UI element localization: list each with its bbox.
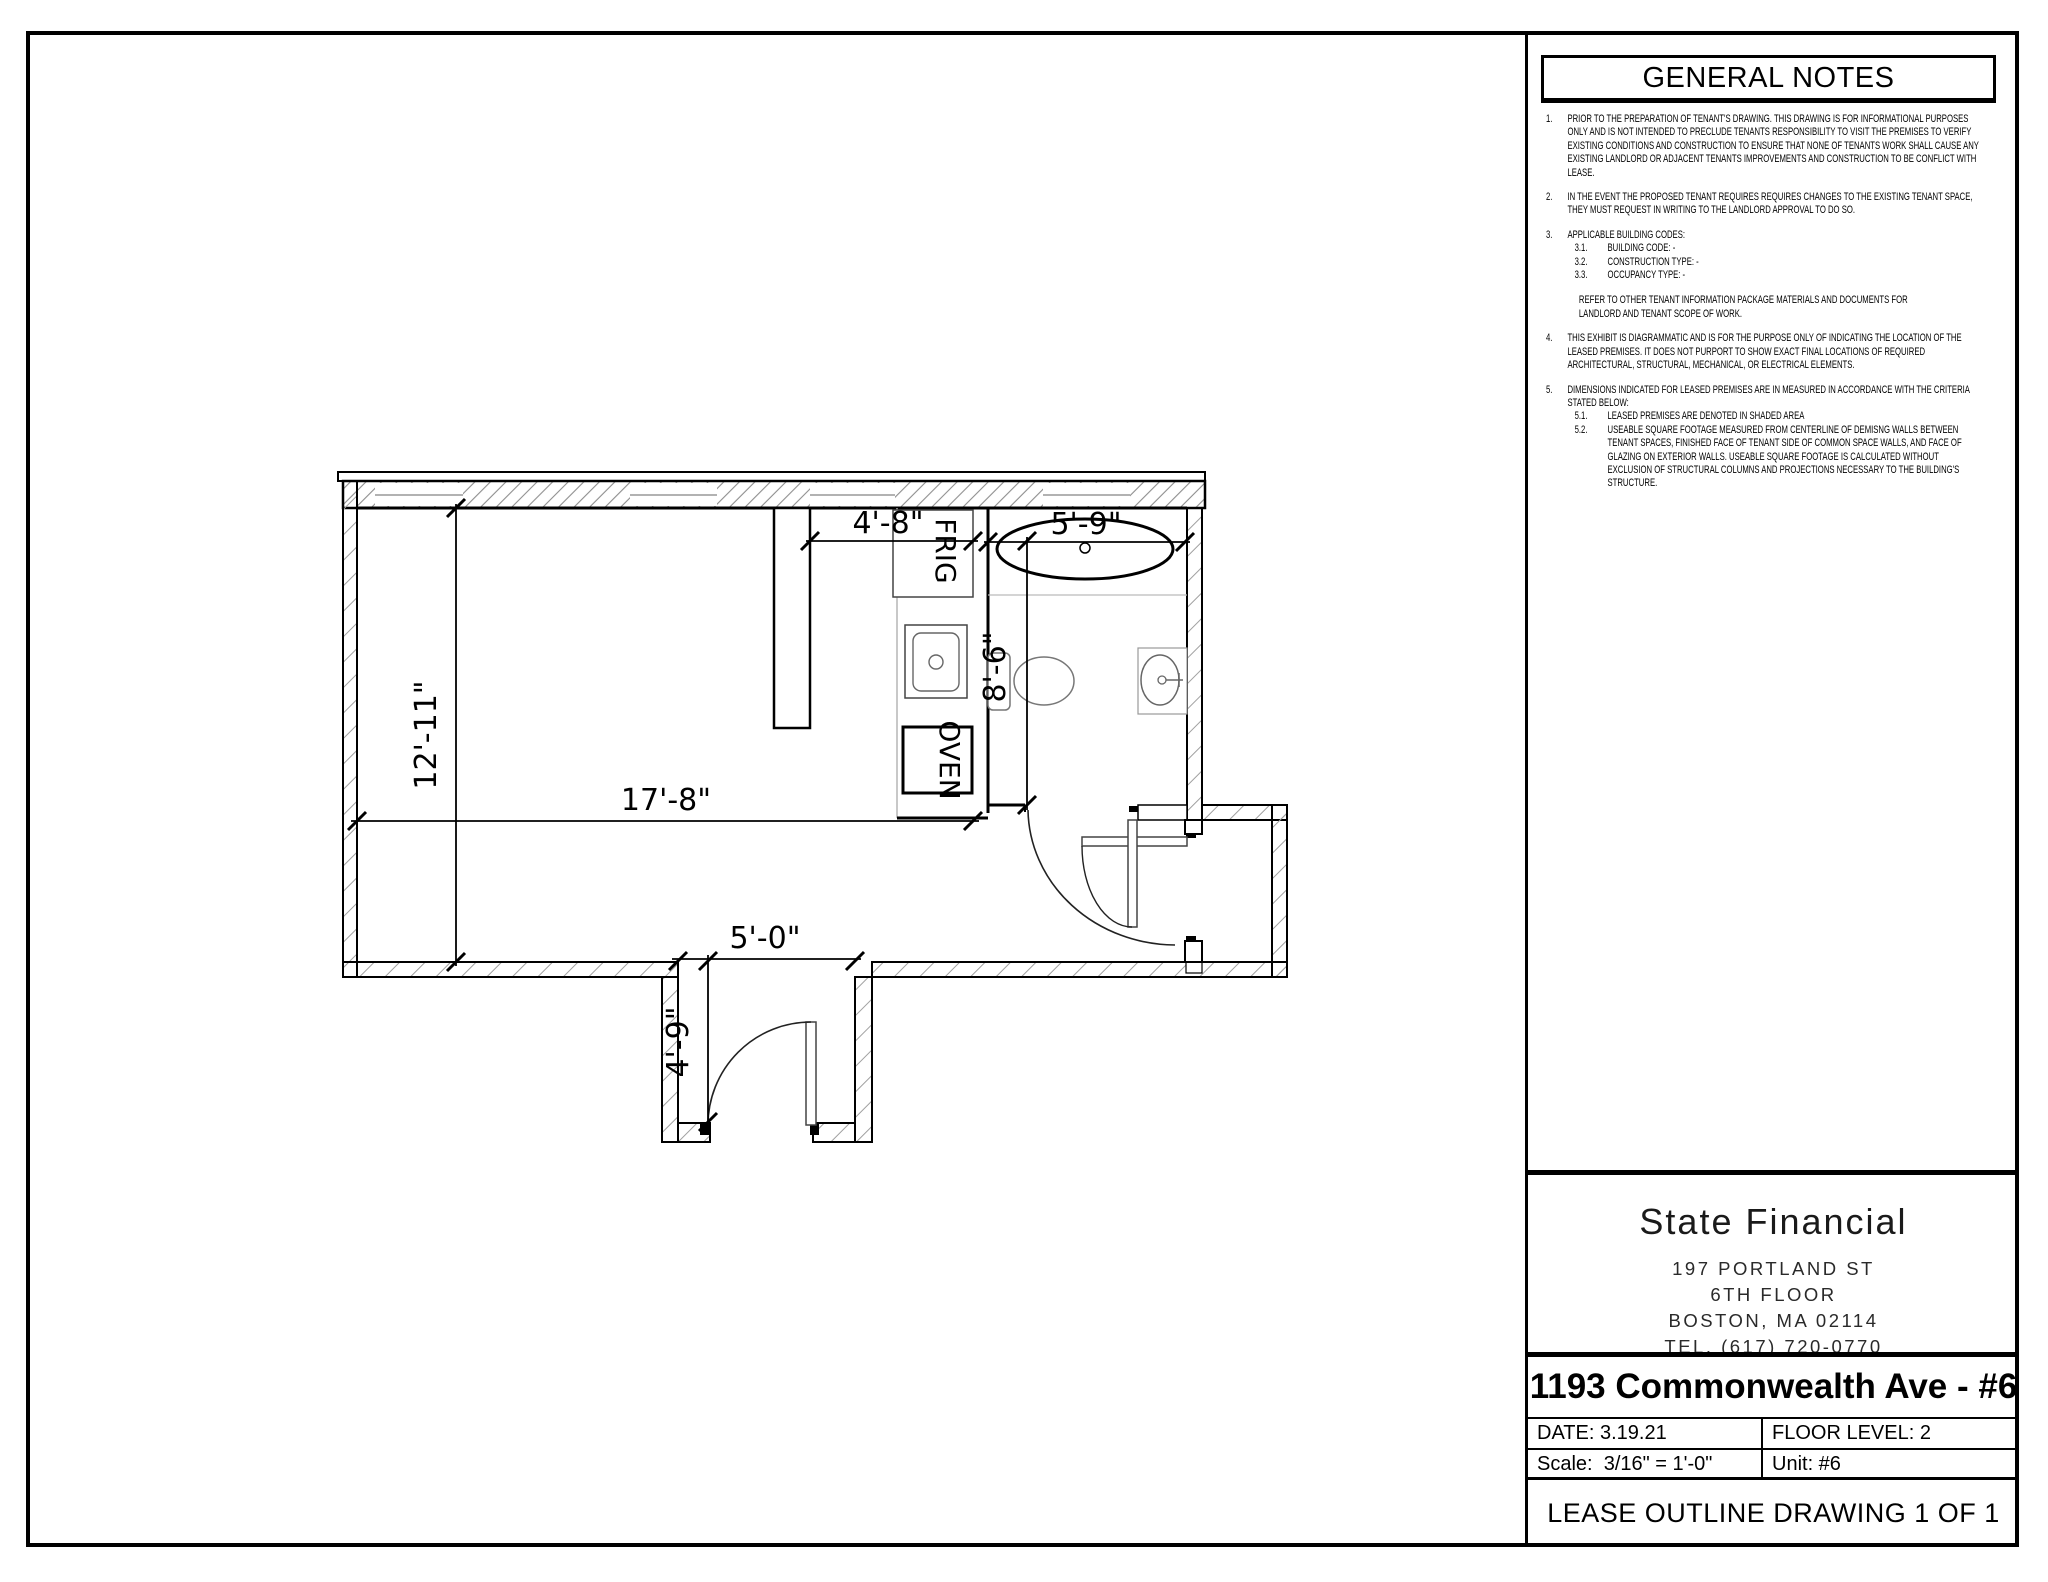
dim-entry-depth: 4'-9" [661, 1006, 696, 1077]
general-notes-title: GENERAL NOTES [1643, 62, 1895, 95]
bathroom-sink [1138, 648, 1187, 714]
note-item: 1. PRIOR TO THE PREPARATION OF TENANT'S … [1546, 113, 1985, 180]
fridge-label: FRIG [929, 518, 962, 584]
title-block-row: Scale: 3/16" = 1'-0" Unit: #6 [1528, 1448, 2019, 1479]
firm-address-line2: 6TH FLOOR [1528, 1282, 2019, 1308]
project-title-band: 1193 Commonwealth Ave - #6 [1528, 1352, 2019, 1417]
note-item: 3. APPLICABLE BUILDING CODES: 3.1. BUILD… [1546, 229, 1985, 321]
drawing-sheet: FRIG OVEN [0, 0, 2048, 1582]
firm-address: 197 PORTLAND ST 6TH FLOOR BOSTON, MA 021… [1528, 1256, 2019, 1360]
note-sub-item: 5.2. USEABLE SQUARE FOOTAGE MEASURED FRO… [1575, 424, 1985, 491]
firm-address-line3: BOSTON, MA 02114 [1528, 1308, 2019, 1334]
date-cell: DATE: 3.19.21 [1528, 1419, 1761, 1448]
firm-address-line1: 197 PORTLAND ST [1528, 1256, 2019, 1282]
dim-entry-width: 5'-0" [729, 921, 800, 956]
scale-cell: Scale: 3/16" = 1'-0" [1528, 1450, 1761, 1479]
note-item: 2. IN THE EVENT THE PROPOSED TENANT REQU… [1546, 191, 1985, 218]
sheet-title-band: LEASE OUTLINE DRAWING 1 OF 1 [1528, 1477, 2019, 1547]
floor-level-cell: FLOOR LEVEL: 2 [1761, 1419, 2019, 1448]
dim-bathroom-width: 5'-9" [1050, 507, 1121, 542]
note-item: 4. THIS EXHIBIT IS DIAGRAMMATIC AND IS F… [1546, 332, 1985, 372]
oven-label: OVEN [933, 720, 966, 799]
entry-hall-doors [1028, 810, 1187, 945]
note-sub-item: 3.3. OCCUPANCY TYPE: - [1575, 269, 1985, 282]
dim-bathroom-depth: 8'-6" [978, 631, 1013, 702]
exterior-window-wall [338, 472, 1205, 508]
kitchen-partition [774, 508, 810, 728]
vestibule-door [708, 1022, 816, 1125]
project-title: 1193 Commonwealth Ave - #6 [1530, 1367, 2018, 1407]
kitchen-sink [905, 625, 967, 698]
note-extra: REFER TO OTHER TENANT INFORMATION PACKAG… [1579, 294, 1922, 321]
room-outline [357, 508, 1187, 813]
title-block-row: DATE: 3.19.21 FLOOR LEVEL: 2 [1528, 1417, 2019, 1448]
sheet-title: LEASE OUTLINE DRAWING 1 OF 1 [1547, 1498, 2000, 1529]
dim-kitchen-width: 4'-8" [852, 506, 923, 541]
title-block-grid: DATE: 3.19.21 FLOOR LEVEL: 2 Scale: 3/16… [1528, 1417, 2019, 1479]
closet-walls [1129, 508, 1287, 977]
kitchen-area: FRIG OVEN [774, 508, 988, 818]
firm-block: State Financial 197 PORTLAND ST 6TH FLOO… [1528, 1170, 2019, 1352]
dim-overall-width: 17'-8" [621, 783, 711, 818]
note-item: 5. DIMENSIONS INDICATED FOR LEASED PREMI… [1546, 384, 1985, 491]
note-sub-item: 5.1. LEASED PREMISES ARE DENOTED IN SHAD… [1575, 410, 1985, 423]
bottom-wall [343, 960, 1287, 977]
left-wall [343, 481, 357, 977]
dimensions: 12'-11" 17'-8" 4'-8" 5'-9" 8'-6" [348, 499, 1194, 1131]
general-notes-list: 1. PRIOR TO THE PREPARATION OF TENANT'S … [1546, 113, 1985, 502]
firm-name: State Financial [1528, 1201, 2019, 1243]
unit-cell: Unit: #6 [1761, 1450, 2019, 1479]
note-sub-item: 3.2. CONSTRUCTION TYPE: - [1575, 256, 1985, 269]
dim-overall-depth: 12'-11" [409, 680, 444, 789]
note-sub-item: 3.1. BUILDING CODE: - [1575, 242, 1985, 255]
info-panel: GENERAL NOTES 1. PRIOR TO THE PREPARATIO… [1525, 35, 2019, 1547]
general-notes-header: GENERAL NOTES [1541, 55, 1996, 103]
